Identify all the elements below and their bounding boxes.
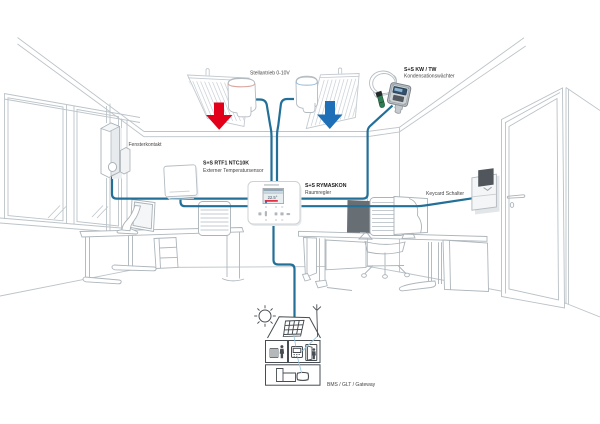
svg-text:Stellantrieb 0-10V: Stellantrieb 0-10V	[250, 71, 290, 77]
svg-text:Raumregler: Raumregler	[305, 190, 331, 196]
svg-text:Fensterkontakt: Fensterkontakt	[129, 142, 163, 148]
svg-text:BMS / GLT / Gateway: BMS / GLT / Gateway	[327, 382, 376, 388]
svg-text:Kondensationswächter: Kondensationswächter	[404, 74, 455, 80]
svg-text:S+S RTF1 NTC10K: S+S RTF1 NTC10K	[203, 160, 249, 166]
svg-text:Externer Temperatursensor: Externer Temperatursensor	[203, 168, 264, 174]
svg-text:S+S KW / TW: S+S KW / TW	[404, 67, 437, 73]
svg-text:S+S RYMASKON: S+S RYMASKON	[305, 183, 347, 189]
svg-text:22.5°: 22.5°	[268, 195, 278, 200]
svg-text:Keycard Schalter: Keycard Schalter	[426, 191, 464, 197]
